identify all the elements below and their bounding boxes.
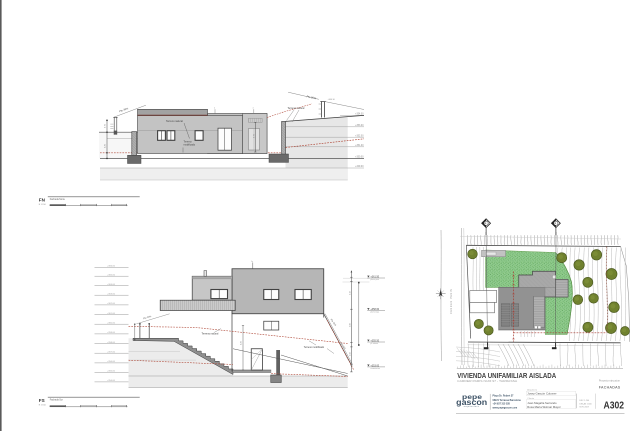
svg-text:+354.00: +354.00 bbox=[107, 380, 116, 382]
svg-text:+349.00: +349.00 bbox=[355, 166, 364, 168]
svg-text:E 1:150: E 1:150 bbox=[39, 204, 47, 206]
svg-text:+364.10: +364.10 bbox=[328, 99, 336, 101]
svg-text:+352.00: +352.00 bbox=[355, 135, 364, 137]
svg-text:2.50: 2.50 bbox=[349, 352, 351, 356]
svg-text:b: b bbox=[252, 261, 254, 263]
svg-text:2.70: 2.70 bbox=[105, 123, 107, 128]
svg-text:CARRER PARIS NUM 97 - TARRASSA: CARRER PARIS NUM 97 - TARRASSA bbox=[457, 379, 517, 383]
svg-text:+351.00: +351.00 bbox=[355, 145, 364, 147]
svg-text:Terreno natural: Terreno natural bbox=[202, 333, 219, 336]
svg-text:Terreno modificado: Terreno modificado bbox=[304, 346, 325, 349]
svg-text:A302: A302 bbox=[604, 401, 625, 412]
svg-text:www.pepegascon.com: www.pepegascon.com bbox=[493, 407, 518, 409]
svg-text:a r q u i t e c t u r a: a r q u i t e c t u r a bbox=[464, 405, 479, 408]
svg-text:Josep Gascón Colomer: Josep Gascón Colomer bbox=[527, 392, 556, 396]
svg-text:FS: FS bbox=[39, 398, 45, 403]
svg-text:ESC 1:200: ESC 1:200 bbox=[580, 400, 591, 402]
svg-text:Proyecto ejecucion: Proyecto ejecucion bbox=[599, 379, 621, 382]
svg-text:+364.00: +364.00 bbox=[107, 284, 116, 286]
svg-text:+356.00: +356.00 bbox=[107, 361, 116, 363]
svg-text:+355.00: +355.00 bbox=[107, 371, 116, 373]
svg-text:+353.00: +353.00 bbox=[355, 125, 364, 127]
svg-text:FACHADAS: FACHADAS bbox=[599, 386, 621, 390]
svg-text:+350.00: +350.00 bbox=[355, 157, 364, 159]
svg-text:NOV 2009: NOV 2009 bbox=[580, 407, 590, 409]
svg-text:Terreno natural: Terreno natural bbox=[288, 107, 305, 110]
svg-text:planta piso: planta piso bbox=[370, 278, 379, 281]
svg-text:+365.00: +365.00 bbox=[107, 275, 116, 277]
svg-text:Terreno natural: Terreno natural bbox=[166, 120, 183, 123]
svg-text:Rosa María Wolmar Mayol: Rosa María Wolmar Mayol bbox=[527, 405, 560, 409]
svg-text:+362.00: +362.00 bbox=[107, 303, 116, 305]
svg-text:3.00: 3.00 bbox=[349, 323, 351, 327]
svg-text:C A R R E R P A R I S: C A R R E R P A R I S bbox=[450, 289, 453, 314]
svg-text:+363.00: +363.00 bbox=[107, 294, 116, 296]
svg-text:DIN-A3 1:400: DIN-A3 1:400 bbox=[580, 402, 593, 405]
svg-text:n: n bbox=[214, 108, 215, 110]
svg-text:+358.00: +358.00 bbox=[107, 342, 116, 344]
svg-text:+366.00: +366.00 bbox=[107, 266, 116, 268]
svg-text:+34 937 315 528: +34 937 315 528 bbox=[493, 402, 511, 405]
svg-text:Pte 30%: Pte 30% bbox=[330, 318, 337, 327]
svg-text:3.10: 3.10 bbox=[349, 291, 351, 295]
svg-text:+360.00: +360.00 bbox=[107, 323, 116, 325]
svg-text:08221 Terrassa Barcelona: 08221 Terrassa Barcelona bbox=[493, 400, 522, 402]
svg-text:Pte 30%: Pte 30% bbox=[306, 95, 317, 100]
svg-text:+361.00: +361.00 bbox=[107, 313, 116, 315]
svg-text:+357.00: +357.00 bbox=[107, 352, 116, 354]
svg-text:modificado: modificado bbox=[184, 144, 196, 147]
svg-text:Fachada Norte: Fachada Norte bbox=[50, 198, 66, 201]
svg-text:Pte 30%: Pte 30% bbox=[119, 107, 130, 113]
svg-text:+359.00: +359.00 bbox=[107, 332, 116, 334]
svg-text:n: n bbox=[253, 108, 254, 110]
svg-text:cimentacion: cimentacion bbox=[370, 367, 380, 370]
svg-text:Plaça Dr. Robert 37: Plaça Dr. Robert 37 bbox=[493, 394, 515, 397]
svg-text:planta baja: planta baja bbox=[370, 311, 379, 314]
svg-text:pl. sotano: pl. sotano bbox=[370, 342, 378, 345]
svg-text:E 1:150: E 1:150 bbox=[39, 405, 47, 407]
svg-text:FN: FN bbox=[39, 198, 46, 203]
svg-text:Fachada Sur: Fachada Sur bbox=[50, 399, 63, 402]
svg-text:Cliente: Cliente bbox=[527, 397, 535, 400]
